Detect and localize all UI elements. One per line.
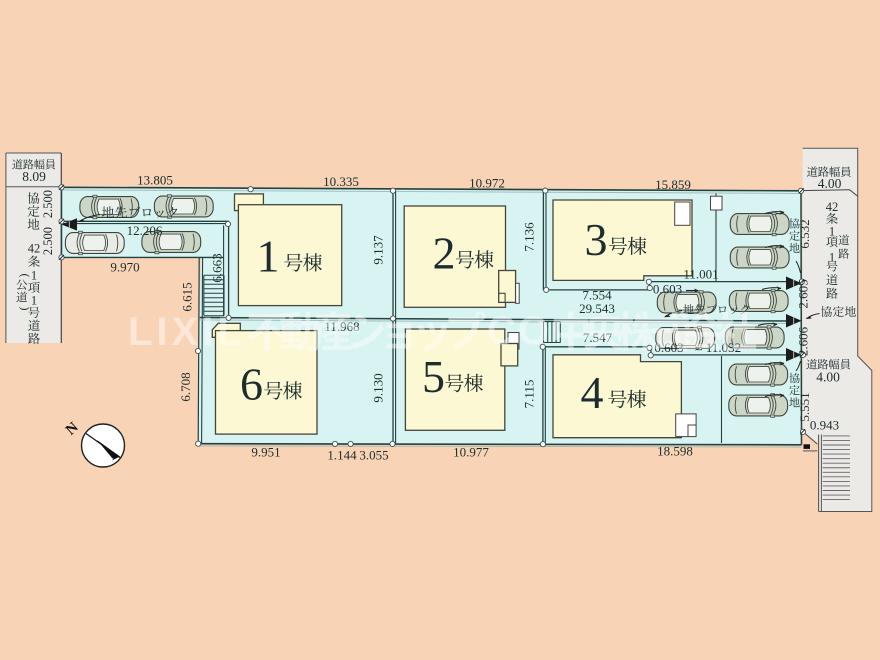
svg-text:11.001: 11.001 <box>683 267 718 282</box>
svg-text:10.972: 10.972 <box>469 176 505 191</box>
svg-text:4: 4 <box>581 367 604 418</box>
svg-text:6.708: 6.708 <box>178 372 193 401</box>
svg-text:2: 2 <box>433 228 456 279</box>
svg-text:6: 6 <box>240 359 263 410</box>
svg-text:10.335: 10.335 <box>323 174 359 189</box>
svg-text:10.977: 10.977 <box>453 445 489 460</box>
svg-text:2.605: 2.605 <box>796 279 811 308</box>
svg-text:1.144: 1.144 <box>327 448 357 463</box>
svg-text:3.055: 3.055 <box>359 448 388 463</box>
svg-text:4.00: 4.00 <box>818 176 842 191</box>
svg-text:9.970: 9.970 <box>110 260 139 275</box>
svg-text:7.136: 7.136 <box>522 222 537 252</box>
svg-text:0.603: 0.603 <box>653 282 682 297</box>
svg-text:9.137: 9.137 <box>371 235 386 265</box>
svg-text:9.130: 9.130 <box>371 373 386 402</box>
svg-text:1: 1 <box>31 293 37 307</box>
svg-text:LIXIL: LIXIL <box>128 310 246 354</box>
svg-text:9.951: 9.951 <box>251 445 280 460</box>
svg-text:): ) <box>19 307 33 311</box>
svg-text:1: 1 <box>257 231 280 282</box>
svg-text:5: 5 <box>422 351 445 402</box>
svg-text:6.663: 6.663 <box>210 253 225 282</box>
svg-text:8.09: 8.09 <box>22 169 46 184</box>
svg-text:2.500: 2.500 <box>41 227 55 255</box>
svg-text:1: 1 <box>829 251 835 265</box>
svg-text:3: 3 <box>585 214 608 265</box>
svg-text:7.115: 7.115 <box>522 380 537 409</box>
svg-text:4.00: 4.00 <box>816 370 840 385</box>
svg-text:0.943: 0.943 <box>810 418 839 433</box>
svg-text:1: 1 <box>829 225 835 239</box>
svg-text:18.598: 18.598 <box>657 444 693 459</box>
svg-text:6.615: 6.615 <box>180 282 195 311</box>
svg-text:2.500: 2.500 <box>41 190 55 218</box>
svg-text:15.859: 15.859 <box>655 177 691 192</box>
svg-text:13.805: 13.805 <box>137 173 173 188</box>
svg-text:2.606: 2.606 <box>796 326 811 356</box>
svg-text:29.543: 29.543 <box>579 301 615 316</box>
svg-text:42: 42 <box>826 200 839 214</box>
svg-text:42: 42 <box>28 241 41 255</box>
svg-text:12.206: 12.206 <box>127 223 163 238</box>
svg-text:CO: CO <box>487 309 551 353</box>
svg-text:(: ( <box>19 274 33 278</box>
